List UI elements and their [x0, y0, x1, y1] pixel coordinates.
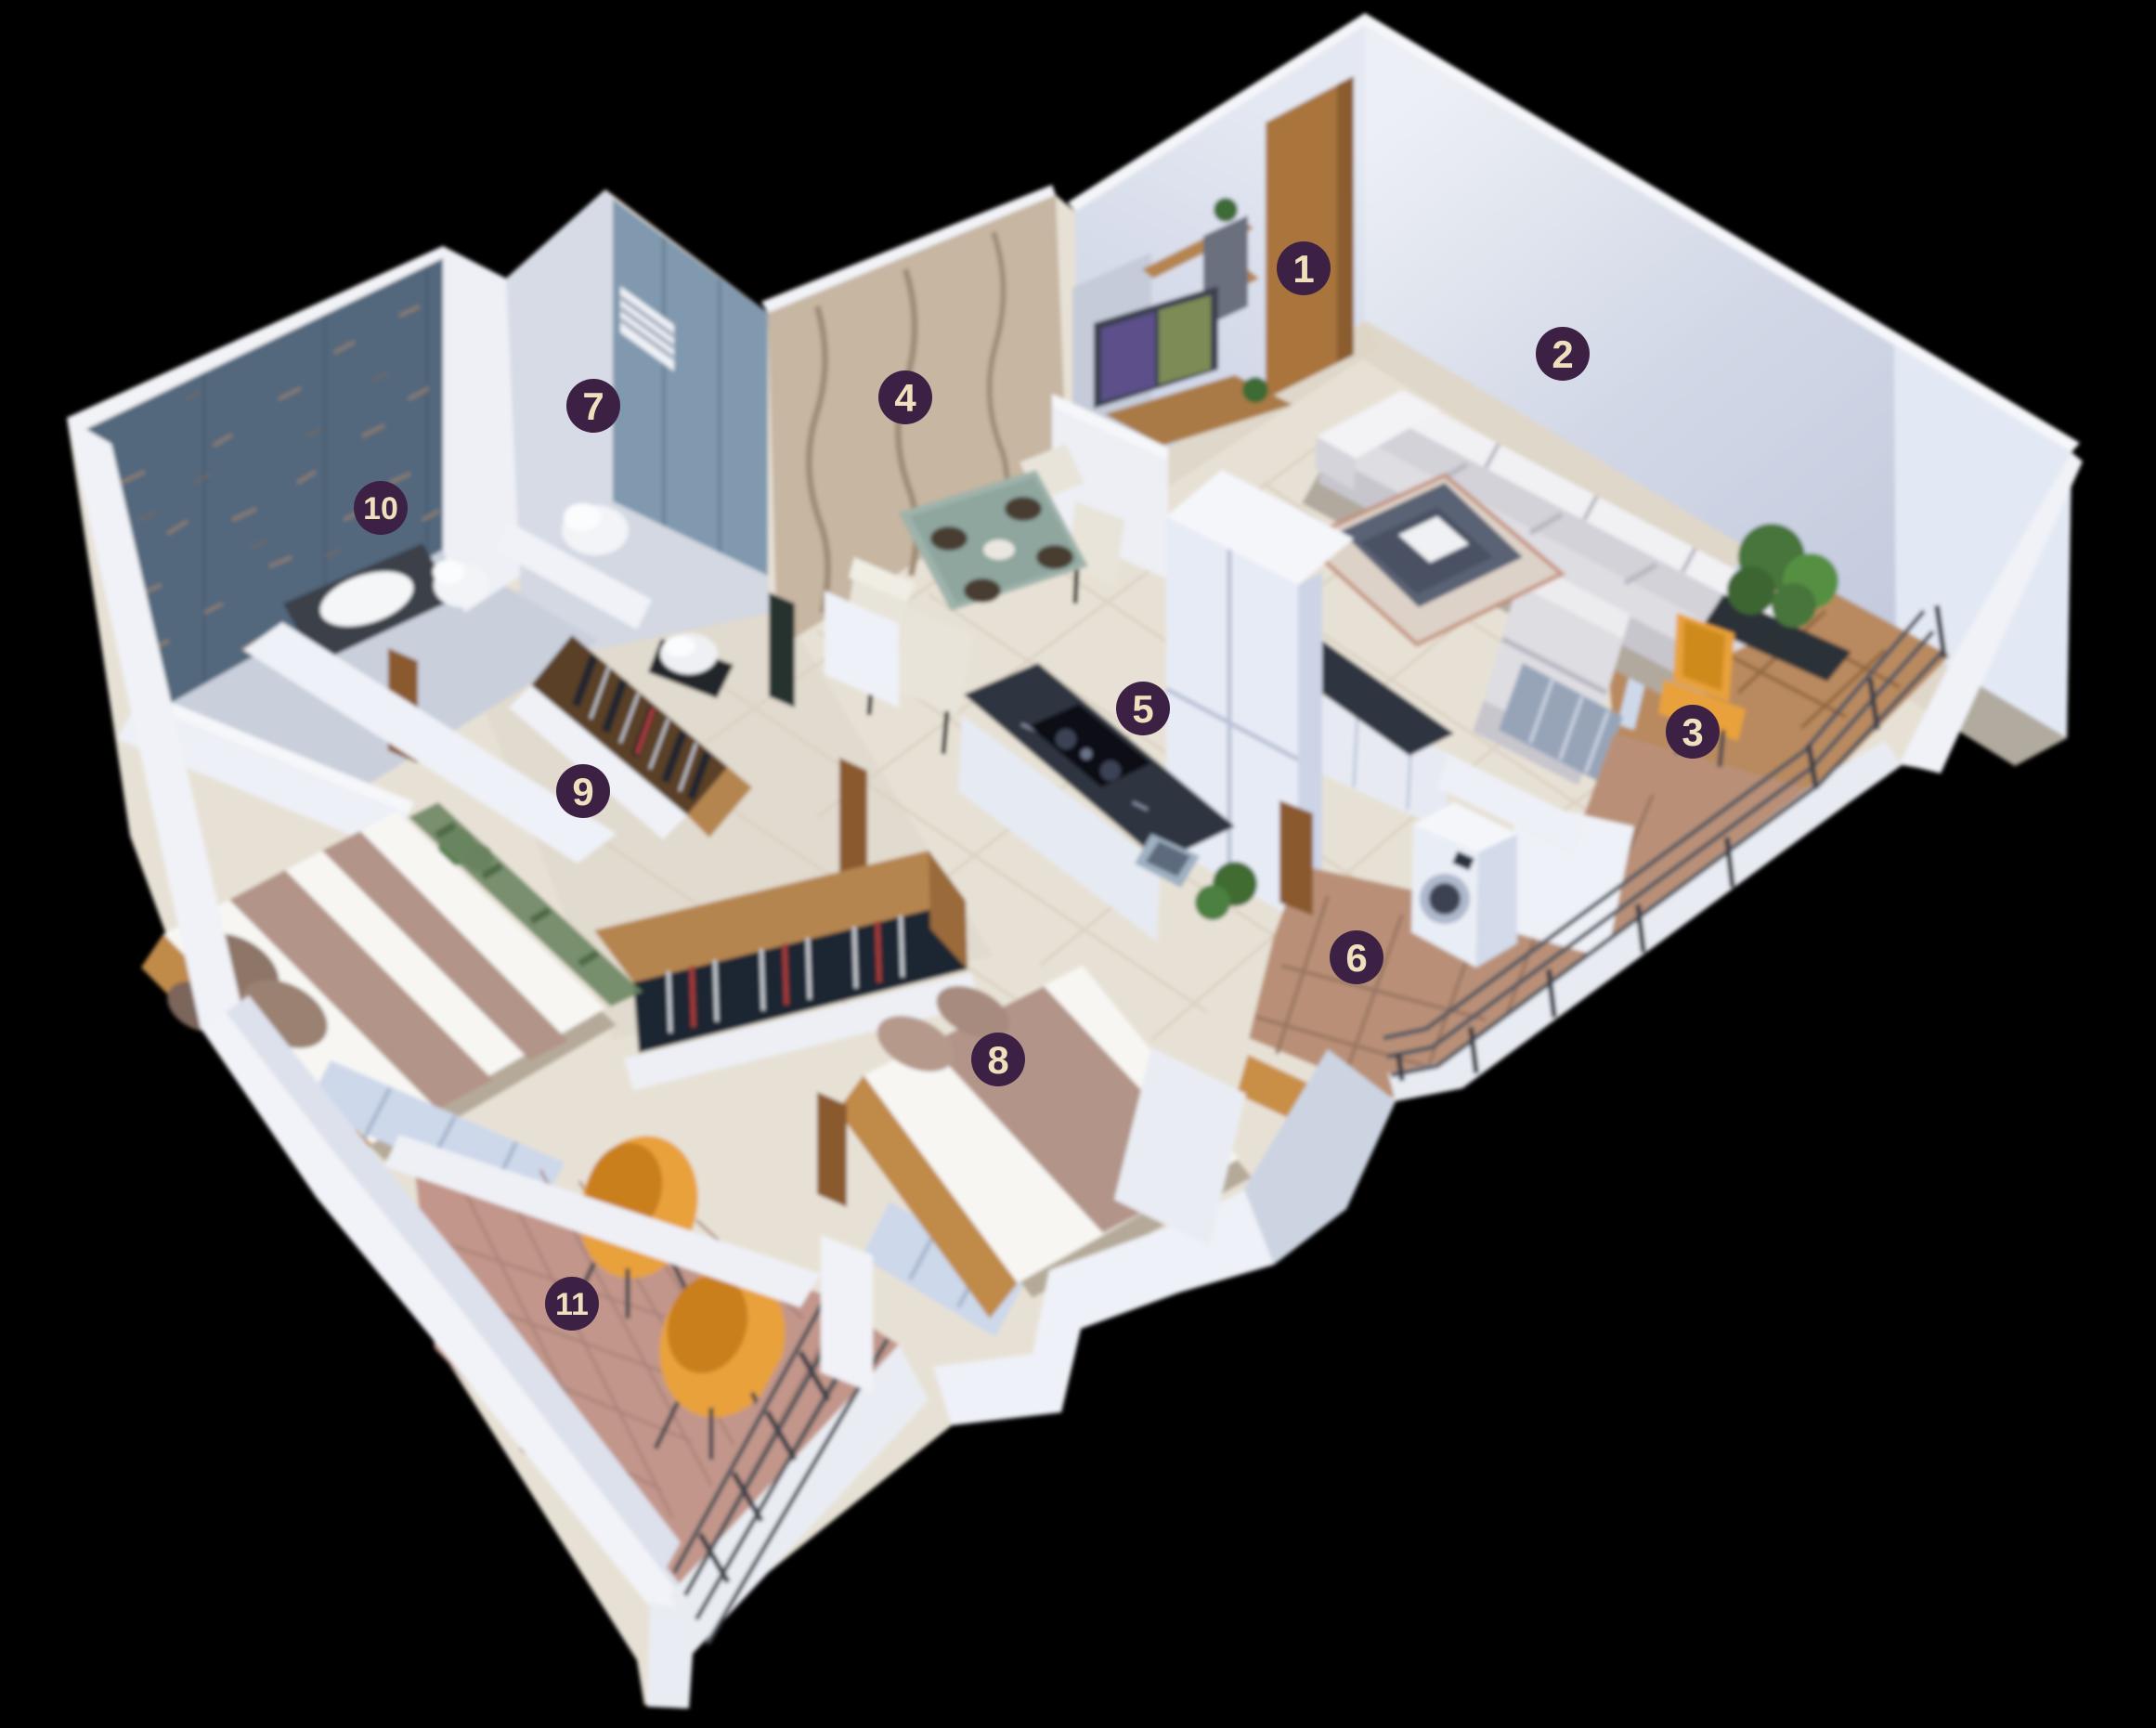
svg-text:3: 3 [1682, 710, 1703, 754]
svg-text:11: 11 [555, 1287, 589, 1322]
svg-text:4: 4 [894, 376, 916, 420]
svg-text:7: 7 [582, 384, 604, 428]
svg-text:1: 1 [1292, 247, 1314, 291]
svg-text:10: 10 [363, 491, 398, 526]
svg-text:9: 9 [572, 770, 593, 813]
svg-text:8: 8 [987, 1038, 1008, 1082]
svg-text:5: 5 [1132, 687, 1153, 731]
svg-text:2: 2 [1552, 332, 1573, 376]
svg-text:6: 6 [1345, 936, 1367, 980]
